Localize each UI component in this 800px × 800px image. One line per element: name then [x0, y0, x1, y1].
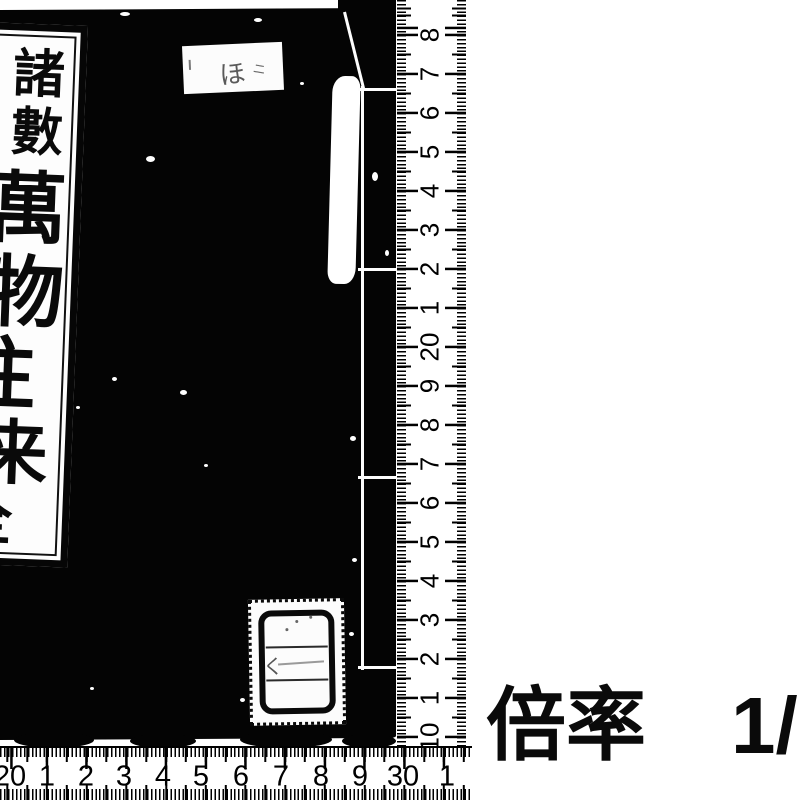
wear-speckle — [352, 558, 357, 562]
vertical-ruler-number: 4 — [415, 574, 446, 588]
vertical-ruler-number: 4 — [415, 184, 446, 198]
vertical-ruler-number: 5 — [415, 535, 446, 549]
vertical-ruler-number: 8 — [415, 28, 446, 42]
vertical-ruler-number: 5 — [415, 145, 446, 159]
label-mark — [189, 60, 191, 70]
vertical-ruler-number: 2 — [415, 652, 446, 666]
vertical-ruler-number: 2 — [415, 262, 446, 276]
vertical-ruler-number: 7 — [415, 67, 446, 81]
sticker-mark-dot — [285, 628, 288, 631]
vertical-ruler-number: 3 — [415, 223, 446, 237]
title-slip-char: 物 — [0, 253, 65, 334]
archival-scan-page: { "page": { "background_color": "#ffffff… — [0, 0, 800, 800]
wear-speckle — [76, 406, 80, 409]
title-slip-char: 諸 — [12, 48, 66, 102]
wear-speckle — [180, 390, 187, 395]
vertical-ruler-number: 9 — [415, 379, 446, 393]
binding-thread — [361, 86, 364, 670]
vertical-ruler-number: 3 — [415, 613, 446, 627]
magnification-caption: 倍率 1/ — [0, 672, 800, 782]
title-slip-char: 来 — [0, 417, 49, 490]
wear-speckle — [146, 156, 155, 162]
wear-speckle — [350, 436, 356, 441]
vertical-ruler-number: 6 — [415, 106, 446, 120]
wear-speckle — [300, 82, 304, 85]
magnification-label: 倍率 — [486, 686, 646, 766]
sticker-mark-dot — [309, 616, 312, 619]
binding-stitch — [358, 666, 397, 669]
vertical-ruler: 876543212098765432110 — [396, 0, 468, 748]
title-slip-char: 全 — [0, 490, 13, 548]
title-slip-char: 數 — [10, 106, 64, 160]
vertical-ruler-number: 6 — [415, 496, 446, 510]
label-mark: ニ — [252, 58, 270, 79]
vertical-ruler-number: 8 — [415, 418, 446, 432]
wear-speckle — [204, 464, 208, 467]
ruler-ticks-cm — [445, 0, 466, 748]
binding-stitch — [358, 476, 397, 479]
title-slip-text: 諸數萬物往来全 — [0, 29, 81, 33]
call-number-text: ほ — [217, 53, 247, 93]
vertical-ruler-number: 20 — [415, 333, 446, 362]
title-slip-char: 往 — [0, 334, 37, 415]
wear-speckle — [112, 377, 117, 381]
vertical-ruler-number: 1 — [415, 301, 446, 315]
wear-speckle — [349, 632, 354, 636]
title-slip-char: 萬 — [0, 169, 68, 250]
magnification-value: 1/ — [731, 686, 798, 766]
wear-speckle — [120, 12, 130, 16]
vertical-ruler-number: 7 — [415, 457, 446, 471]
call-number-label: ほ ニ — [182, 42, 284, 94]
binding-stitch — [358, 88, 397, 91]
wear-speckle — [372, 172, 378, 181]
wear-speckle — [385, 250, 389, 256]
sticker-mark-dot — [295, 620, 298, 623]
wear-speckle — [254, 18, 262, 22]
binding-stitch — [358, 268, 397, 271]
page-edge-patch — [327, 76, 360, 285]
